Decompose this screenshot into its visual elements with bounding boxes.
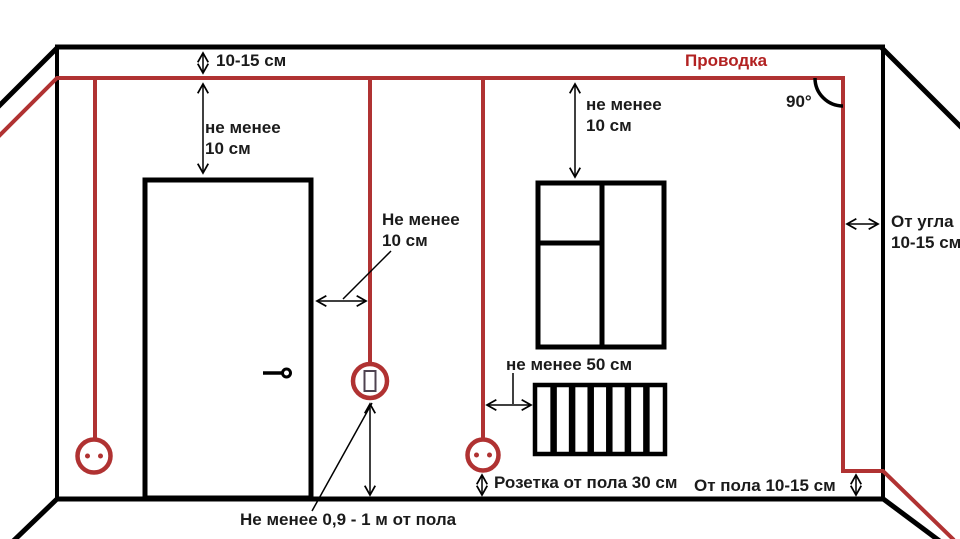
label-switch-gap-line2: 10 см — [382, 230, 460, 251]
label-door-top-line2: 10 см — [205, 138, 281, 159]
switch-rocker — [365, 371, 376, 391]
wiring-rules-diagram: 10-15 см не менее 10 см не менее 10 см Н… — [0, 0, 960, 539]
label-corner-gap: От угла 10-15 см — [891, 211, 960, 253]
socket-center-pin — [487, 453, 492, 458]
switch-icon — [353, 364, 387, 398]
radiator — [535, 385, 665, 454]
leader-switch-height — [312, 403, 372, 511]
socket-center-icon — [468, 440, 499, 471]
door — [145, 180, 311, 498]
corner-top-right-line — [881, 47, 960, 130]
socket-left-icon — [78, 440, 111, 473]
label-right-angle: 90° — [786, 91, 812, 112]
label-window-top-line2: 10 см — [586, 115, 662, 136]
label-door-top-clearance: не менее 10 см — [205, 117, 281, 159]
corner-bottom-left-line — [6, 498, 58, 539]
socket-left-pin — [85, 454, 90, 459]
right-angle-arc — [815, 78, 843, 106]
label-window-top-clearance: не менее 10 см — [586, 94, 662, 136]
label-floor-gap: От пола 10-15 см — [694, 475, 836, 496]
label-window-top-line1: не менее — [586, 94, 662, 115]
socket-left-circle — [78, 440, 111, 473]
label-corner-gap-line2: 10-15 см — [891, 232, 960, 253]
door-leaf — [145, 180, 311, 498]
label-wiring-title: Проводка — [685, 50, 767, 71]
label-switch-gap-line1: Не менее — [382, 209, 460, 230]
corner-top-left-line — [0, 47, 58, 109]
label-socket-height: Розетка от пола 30 см — [494, 472, 677, 493]
label-switch-height: Не менее 0,9 - 1 м от пола — [240, 509, 456, 530]
socket-center-pin — [474, 453, 479, 458]
label-radiator-gap: не менее 50 см — [506, 354, 632, 375]
window — [538, 183, 664, 347]
label-switch-gap: Не менее 10 см — [382, 209, 460, 251]
label-corner-gap-line1: От угла — [891, 211, 960, 232]
diagram-canvas — [0, 0, 960, 539]
label-door-top-line1: не менее — [205, 117, 281, 138]
switch-circle — [353, 364, 387, 398]
socket-left-pin — [98, 454, 103, 459]
door-handle-knob-icon — [283, 369, 291, 377]
leader-switch-gap — [343, 251, 391, 299]
socket-center-circle — [468, 440, 499, 471]
label-ceiling-gap: 10-15 см — [216, 50, 286, 71]
